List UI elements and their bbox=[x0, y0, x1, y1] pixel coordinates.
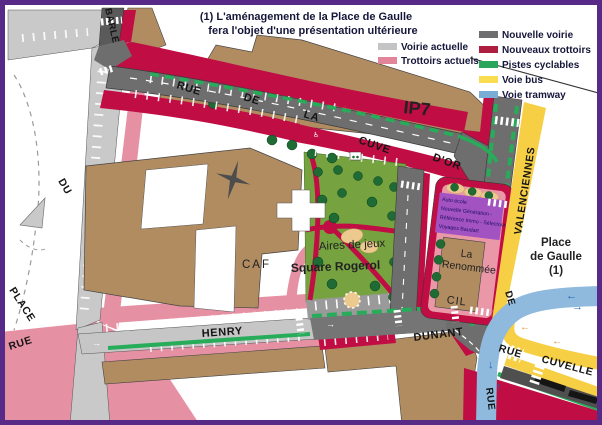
legend-swatch-nouveaux-trottoirs bbox=[479, 46, 498, 53]
label-ip7: IP7 bbox=[403, 97, 432, 120]
legend-swatch-nouvelle-voirie bbox=[479, 31, 498, 38]
legend-label-trottoirs-actuels: Trottoirs actuels bbox=[401, 56, 479, 67]
tram-arrow-down-icon: ↓ bbox=[488, 359, 494, 371]
legend-swatch-trottoirs-actuels bbox=[378, 57, 397, 64]
park-square-rogerol bbox=[304, 152, 406, 320]
legend-swatch-voie-tramway bbox=[479, 91, 498, 98]
road-arrow-right2-icon: → bbox=[326, 319, 335, 329]
legend-label-pistes-cyclables: Pistes cyclables bbox=[502, 60, 580, 71]
bike-parking-icon bbox=[350, 152, 361, 160]
legend-label-nouvelle-voirie: Nouvelle voirie bbox=[502, 30, 574, 41]
urban-plan-map: Auto école Nouvelle Génération - Référen… bbox=[0, 0, 602, 425]
legend-label-voie-bus: Voie bus bbox=[502, 75, 543, 86]
legend-swatch-voie-bus bbox=[479, 76, 498, 83]
label-place-de-gaulle-2: de Gaulle bbox=[530, 251, 582, 263]
road-arrow-right-icon: → bbox=[92, 338, 101, 348]
label-la: La bbox=[460, 248, 473, 261]
label-place-de-gaulle-1: Place bbox=[541, 237, 571, 249]
title-line-1: (1) L'aménagement de la Place de Gaulle bbox=[200, 11, 412, 23]
legend-swatch-voirie-actuelle bbox=[378, 43, 397, 50]
accessible-parking-icon: ♿ bbox=[313, 131, 319, 139]
title-line-2: fera l'objet d'une présentation ultérieu… bbox=[208, 25, 417, 37]
bus-arrow-left-icon: ← bbox=[520, 322, 530, 333]
label-caf: CAF bbox=[242, 259, 271, 271]
legend-label-voirie-actuelle: Voirie actuelle bbox=[401, 42, 469, 53]
tram-arrow-right-icon: → bbox=[572, 301, 583, 313]
legend-swatch-pistes-cyclables bbox=[479, 61, 498, 68]
legend-label-nouveaux-trottoirs: Nouveaux trottoirs bbox=[502, 45, 591, 56]
legend-label-voie-tramway: Voie tramway bbox=[502, 90, 566, 101]
bus-arrow-left2-icon: ← bbox=[552, 336, 562, 347]
label-place-de-gaulle-3: (1) bbox=[549, 265, 563, 277]
tram-arrow-up-icon: ↑ bbox=[496, 381, 502, 393]
